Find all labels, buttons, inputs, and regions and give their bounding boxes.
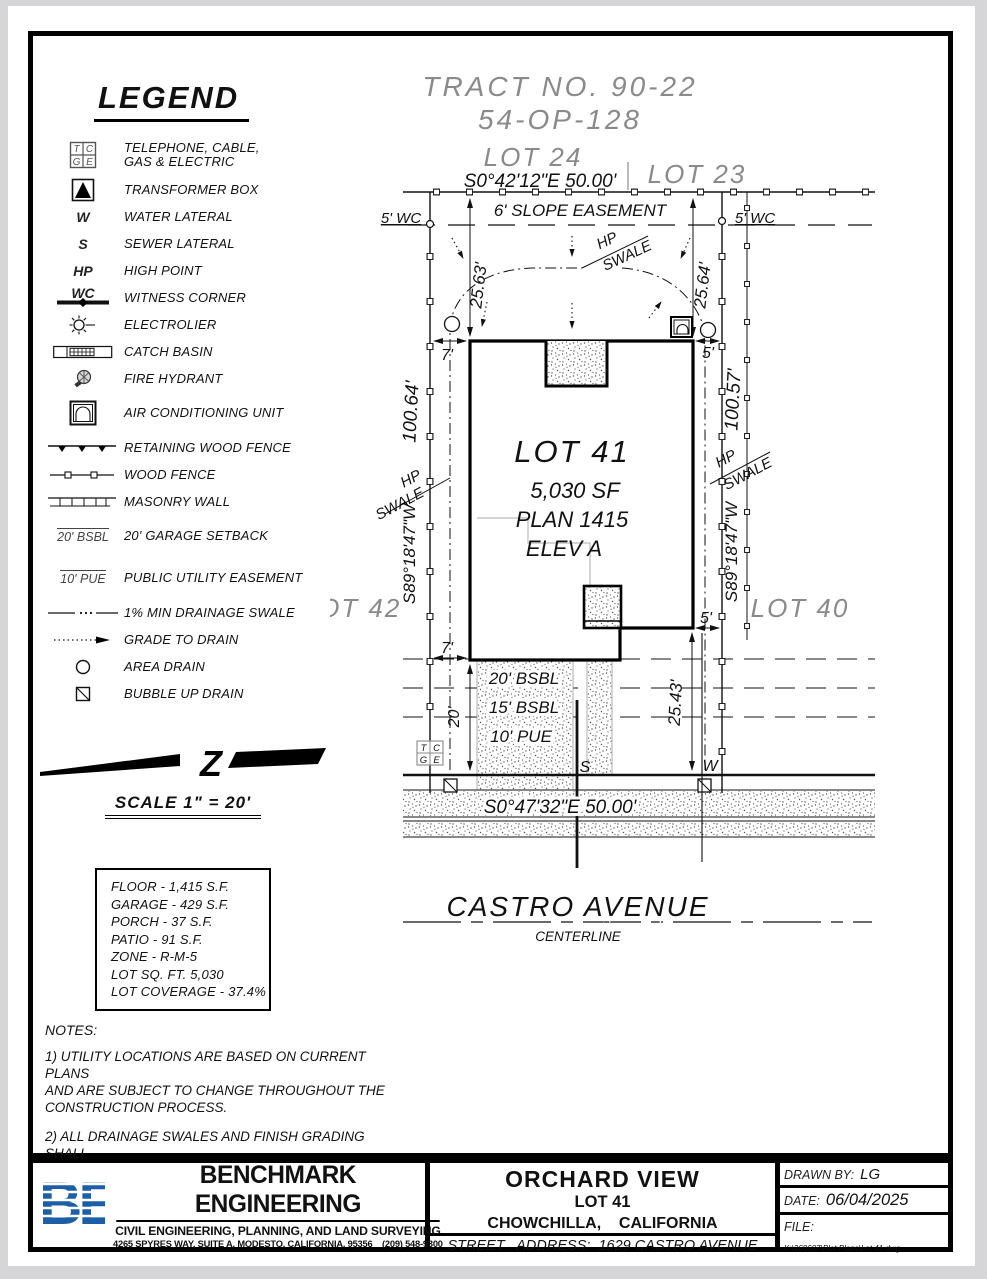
legend-item-area-drain: AREA DRAIN	[42, 653, 352, 680]
legend-item-grade-to-drain: GRADE TO DRAIN	[42, 626, 352, 653]
high-point-symbol: HP	[42, 263, 124, 279]
tract-number: TRACT NO. 90-22	[422, 71, 697, 102]
stat-patio: PATIO - 91 S.F.	[111, 931, 269, 949]
witness-corner-symbol: WC	[57, 288, 109, 307]
legend-item-tcge: T C G E TELEPHONE, CABLE, GAS & ELECTRIC	[42, 134, 352, 176]
drainage-swale-icon	[42, 609, 124, 617]
meta-block: DRAWN BY: LG DATE: 06/04/2025 FILE: K:\2…	[780, 1163, 948, 1247]
area-drain-right	[701, 323, 716, 338]
scale-block: Z SCALE 1" = 20'	[38, 746, 328, 819]
dim-20: 20'	[446, 706, 463, 729]
dim-5-bottom: 5'	[700, 610, 713, 627]
dim-100-57: 100.57'	[721, 367, 745, 431]
plot-plan-sheet: LEGEND T C G E TELEPHONE, CABLE, GAS & E…	[0, 0, 987, 1279]
svg-text:HP: HP	[713, 447, 739, 472]
setback-15-bsbl: 15' BSBL	[489, 698, 559, 717]
lot-42-label: LOT 42	[330, 593, 401, 623]
water-lateral-symbol: W	[42, 209, 124, 225]
drawn-by-label: DRAWN BY:	[784, 1168, 854, 1182]
setback-20-bsbl: 20' BSBL	[488, 669, 559, 688]
legend-item-garage-setback: 20' BSBL 20' GARAGE SETBACK	[42, 515, 352, 557]
street-address: STREET ADDRESS: 1629 CASTRO AVENUE	[430, 1233, 775, 1255]
lot-41-elev: ELEV A	[526, 536, 602, 561]
date-value: 06/04/2025	[826, 1191, 909, 1210]
bsbl-symbol: 20' BSBL	[57, 528, 109, 544]
sewer-lateral-symbol: S	[42, 236, 124, 252]
dim-7-bottom: 7'	[441, 640, 454, 657]
stat-porch: PORCH - 37 S.F.	[111, 913, 269, 931]
scale-label: SCALE 1" = 20'	[105, 793, 261, 819]
site-plan: TRACT NO. 90-22 54-OP-128 LOT 24 LOT 23 …	[330, 60, 948, 960]
lot-41-plan: PLAN 1415	[516, 507, 629, 532]
date-label: DATE:	[784, 1194, 820, 1208]
street-name: CASTRO AVENUE	[446, 891, 709, 922]
lot-23-label: LOT 23	[648, 159, 747, 189]
fire-hydrant-icon	[42, 368, 124, 390]
tcge-box-icon: T C G E	[42, 141, 124, 169]
legend-item-fire-hydrant: FIRE HYDRANT	[42, 365, 352, 392]
area-drain-icon	[42, 658, 124, 676]
dim-7-top: 7'	[441, 347, 454, 364]
svg-text:C: C	[86, 144, 94, 155]
lot-41-area: 5,030 SF	[530, 478, 621, 503]
svg-text:G: G	[73, 157, 81, 168]
lot-40-label: LOT 40	[751, 593, 850, 623]
legend-item-electrolier: ELECTROLIER	[42, 311, 352, 338]
transformer-box-icon	[42, 178, 124, 202]
file-path: K:\260607\Plot Plans\Lot 41.dwg	[784, 1244, 944, 1253]
project-lot: LOT 41	[430, 1193, 775, 1212]
setback-lines	[403, 659, 875, 717]
company-block: BE BENCHMARK ENGINEERING CIVIL ENGINEERI…	[33, 1163, 430, 1247]
legend-item-bubble-up-drain: BUBBLE UP DRAIN	[42, 680, 352, 707]
company-tagline: CIVIL ENGINEERING, PLANNING, AND LAND SU…	[113, 1224, 443, 1238]
svg-text:G: G	[420, 755, 427, 766]
legend-item-ac-unit: AIR CONDITIONING UNIT	[42, 392, 352, 434]
legend-item-witness-corner: WC WITNESS CORNER	[42, 284, 352, 311]
stat-lot-sqft: LOT SQ. FT. 5,030	[111, 966, 269, 984]
witness-corner-right	[719, 218, 726, 225]
easement-10-pue: 10' PUE	[490, 727, 552, 746]
legend-item-masonry: MASONRY WALL	[42, 488, 352, 515]
witness-corner-left	[427, 221, 434, 228]
file-label: FILE:	[784, 1220, 814, 1234]
masonry-wall-icon	[42, 495, 124, 509]
svg-text:E: E	[86, 157, 93, 168]
project-block: ORCHARD VIEW LOT 41 CHOWCHILLA, CALIFORN…	[430, 1163, 780, 1247]
benchmark-logo: BE	[39, 1172, 105, 1238]
svg-text:T: T	[73, 144, 80, 155]
legend-item-water: W WATER LATERAL	[42, 203, 352, 230]
south-bearing: S0°47'32"E 50.00'	[484, 797, 638, 818]
legend-item-wood-fence: WOOD FENCE	[42, 461, 352, 488]
map-reference: 54-OP-128	[478, 104, 642, 135]
file-row: FILE: K:\260607\Plot Plans\Lot 41.dwg	[780, 1215, 948, 1255]
retaining-wood-fence-icon	[42, 442, 124, 454]
legend-rows: T C G E TELEPHONE, CABLE, GAS & ELECTRIC…	[42, 134, 352, 707]
lot-41-name: LOT 41	[514, 434, 629, 469]
wood-fence-icon	[42, 470, 124, 480]
svg-text:E: E	[433, 755, 440, 766]
legend-item-highpoint: HP HIGH POINT	[42, 257, 352, 284]
dim-5-top: 5'	[702, 345, 715, 362]
title-block: BE BENCHMARK ENGINEERING CIVIL ENGINEERI…	[28, 1158, 953, 1252]
note-1: 1) UTILITY LOCATIONS ARE BASED ON CURREN…	[45, 1048, 405, 1116]
ac-unit	[671, 317, 692, 337]
legend-item-pue: 10' PUE PUBLIC UTILITY EASEMENT	[42, 557, 352, 599]
west-bearing: S89°18'47"W	[400, 502, 419, 604]
catch-basin-icon	[42, 344, 124, 360]
stat-zone: ZONE - R-M-5	[111, 948, 269, 966]
electrolier-icon	[42, 314, 124, 336]
date-row: DATE: 06/04/2025	[780, 1188, 948, 1215]
ac-unit-icon	[42, 400, 124, 426]
project-name: ORCHARD VIEW	[430, 1166, 775, 1193]
svg-text:HP: HP	[594, 229, 620, 253]
company-name: BENCHMARK ENGINEERING	[116, 1161, 439, 1222]
area-drain-left	[445, 317, 460, 332]
grade-to-drain-icon	[42, 635, 124, 645]
legend-item-swale: 1% MIN DRAINAGE SWALE	[42, 599, 352, 626]
legend-title: LEGEND	[94, 80, 249, 122]
legend: LEGEND T C G E TELEPHONE, CABLE, GAS & E…	[42, 80, 352, 707]
legend-item-retaining-fence: RETAINING WOOD FENCE	[42, 434, 352, 461]
wc-left-label: 5' WC	[381, 210, 422, 227]
drawn-by-value: LG	[860, 1166, 880, 1183]
sewer-lateral-label: S	[580, 759, 591, 776]
east-bearing: S89°18'47"W	[722, 500, 741, 602]
svg-text:C: C	[433, 743, 440, 754]
centerline-label: CENTERLINE	[535, 929, 622, 944]
dim-25-64: 25.64'	[690, 261, 715, 311]
slope-easement-label: 6' SLOPE EASEMENT	[494, 201, 668, 220]
wc-right-label: 5' WC	[735, 210, 776, 227]
lot-stats-box: FLOOR - 1,415 S.F. GARAGE - 429 S.F. POR…	[95, 868, 271, 1011]
svg-text:Z: Z	[199, 746, 224, 782]
legend-item-transformer: TRANSFORMER BOX	[42, 176, 352, 203]
dim-100-64: 100.64'	[399, 379, 423, 443]
north-bearing: S0°42'12"E 50.00'	[464, 171, 618, 192]
water-lateral-label: W	[702, 758, 719, 775]
svg-text:BE: BE	[39, 1172, 105, 1237]
pue-symbol: 10' PUE	[60, 570, 105, 586]
legend-item-sewer: S SEWER LATERAL	[42, 230, 352, 257]
legend-item-catch-basin: CATCH BASIN	[42, 338, 352, 365]
street	[403, 790, 875, 837]
north-arrow-icon: Z	[40, 746, 326, 782]
project-city: CHOWCHILLA, CALIFORNIA	[430, 1215, 775, 1233]
lot-24-label: LOT 24	[484, 142, 583, 172]
bubble-up-drain-icon	[42, 685, 124, 703]
dim-25-43: 25.43'	[665, 679, 686, 727]
company-address: 4265 SPYRES WAY, SUITE A, MODESTO, CALIF…	[113, 1239, 443, 1249]
stat-lot-coverage: LOT COVERAGE - 37.4%	[111, 983, 269, 1001]
notes-title: NOTES:	[45, 1022, 405, 1038]
drawn-by-row: DRAWN BY: LG	[780, 1163, 948, 1188]
front-porch	[546, 341, 607, 386]
street-name-group: CASTRO AVENUE CENTERLINE	[403, 891, 872, 944]
stat-floor: FLOOR - 1,415 S.F.	[111, 878, 269, 896]
stat-garage: GARAGE - 429 S.F.	[111, 896, 269, 914]
tcge-utility-box: T C G E	[417, 741, 443, 766]
